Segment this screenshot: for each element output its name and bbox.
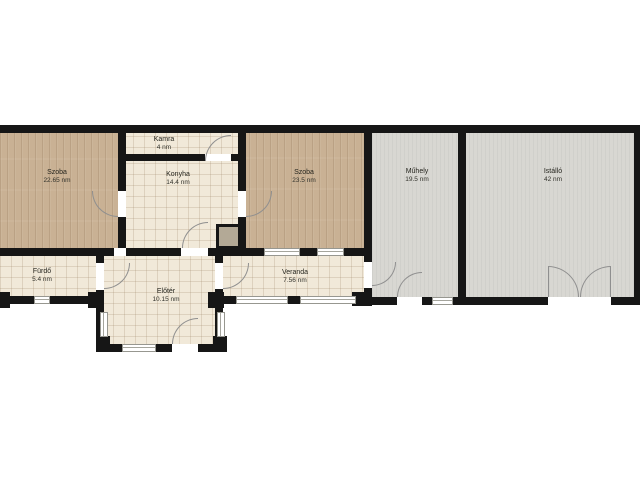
door-opening-veranda-muhely [364, 262, 372, 288]
room-name: Előtér [152, 287, 179, 296]
window-muhely [432, 297, 453, 305]
room-area: 14.4 nm [166, 179, 190, 188]
room-area: 4 nm [154, 144, 175, 153]
wall-corner-block [96, 336, 110, 352]
door-opening-eloter-front [172, 344, 198, 352]
room-area: 5.4 nm [32, 276, 52, 285]
room-label-muhely: Műhely 19.5 nm [405, 167, 429, 185]
room-label-konyha: Konyha 14.4 nm [166, 170, 190, 188]
wall-right-edge [634, 125, 640, 305]
window-szoba-veranda-1 [264, 248, 300, 256]
room-label-eloter: Előtér 10.15 nm [152, 287, 179, 305]
window-veranda-1 [236, 296, 288, 304]
wall-corner-block [208, 292, 224, 308]
room-name: Istálló [544, 167, 562, 176]
room-label-istallo: Istálló 42 nm [544, 167, 562, 185]
window-szoba-veranda-2 [317, 248, 344, 256]
room-area: 22.65 nm [43, 177, 70, 186]
room-label-szoba-left: Szoba 22.65 nm [43, 168, 70, 186]
window-eloter-bottom [122, 344, 156, 352]
room-area: 19.5 nm [405, 176, 429, 185]
room-name: Szoba [292, 168, 316, 177]
window-eloter-right [217, 312, 225, 337]
door-opening-istallo-front [548, 297, 611, 305]
wall-muhely-istallo [458, 125, 466, 305]
room-label-kamra: Kamra 4 nm [154, 135, 175, 153]
room-name: Szoba [43, 168, 70, 177]
door-opening-konyha-eloter [181, 248, 208, 256]
wall-eloter-bottom [98, 344, 226, 352]
room-area: 7.56 nm [282, 277, 308, 286]
room-area: 42 nm [544, 176, 562, 185]
wall-corner-block [213, 336, 227, 352]
room-area: 23.5 nm [292, 177, 316, 186]
door-opening-furdo-eloter [96, 263, 104, 290]
door-opening-szoba-left [118, 191, 126, 217]
room-name: Műhely [405, 167, 429, 176]
window-veranda-2 [300, 296, 356, 304]
room-area: 10.15 nm [152, 296, 179, 305]
wall-corner-block [88, 292, 104, 308]
room-label-veranda: Veranda 7.56 nm [282, 268, 308, 286]
room-name: Konyha [166, 170, 190, 179]
door-opening-szoba-right [238, 191, 246, 217]
wall-corner-block [0, 292, 10, 308]
window-furdo [34, 296, 50, 304]
room-name: Kamra [154, 135, 175, 144]
floor-plan: Szoba 22.65 nm Kamra 4 nm Konyha 14.4 nm… [0, 0, 640, 480]
room-label-szoba-right: Szoba 23.5 nm [292, 168, 316, 186]
wall-junction-gap [114, 248, 126, 256]
window-eloter-left [100, 312, 108, 337]
room-label-furdo: Fürdő 5.4 nm [32, 267, 52, 285]
room-name: Veranda [282, 268, 308, 277]
door-opening-eloter-veranda [215, 263, 223, 289]
room-name: Fürdő [32, 267, 52, 276]
wall-top [0, 125, 640, 133]
door-opening-muhely-front [397, 297, 422, 305]
